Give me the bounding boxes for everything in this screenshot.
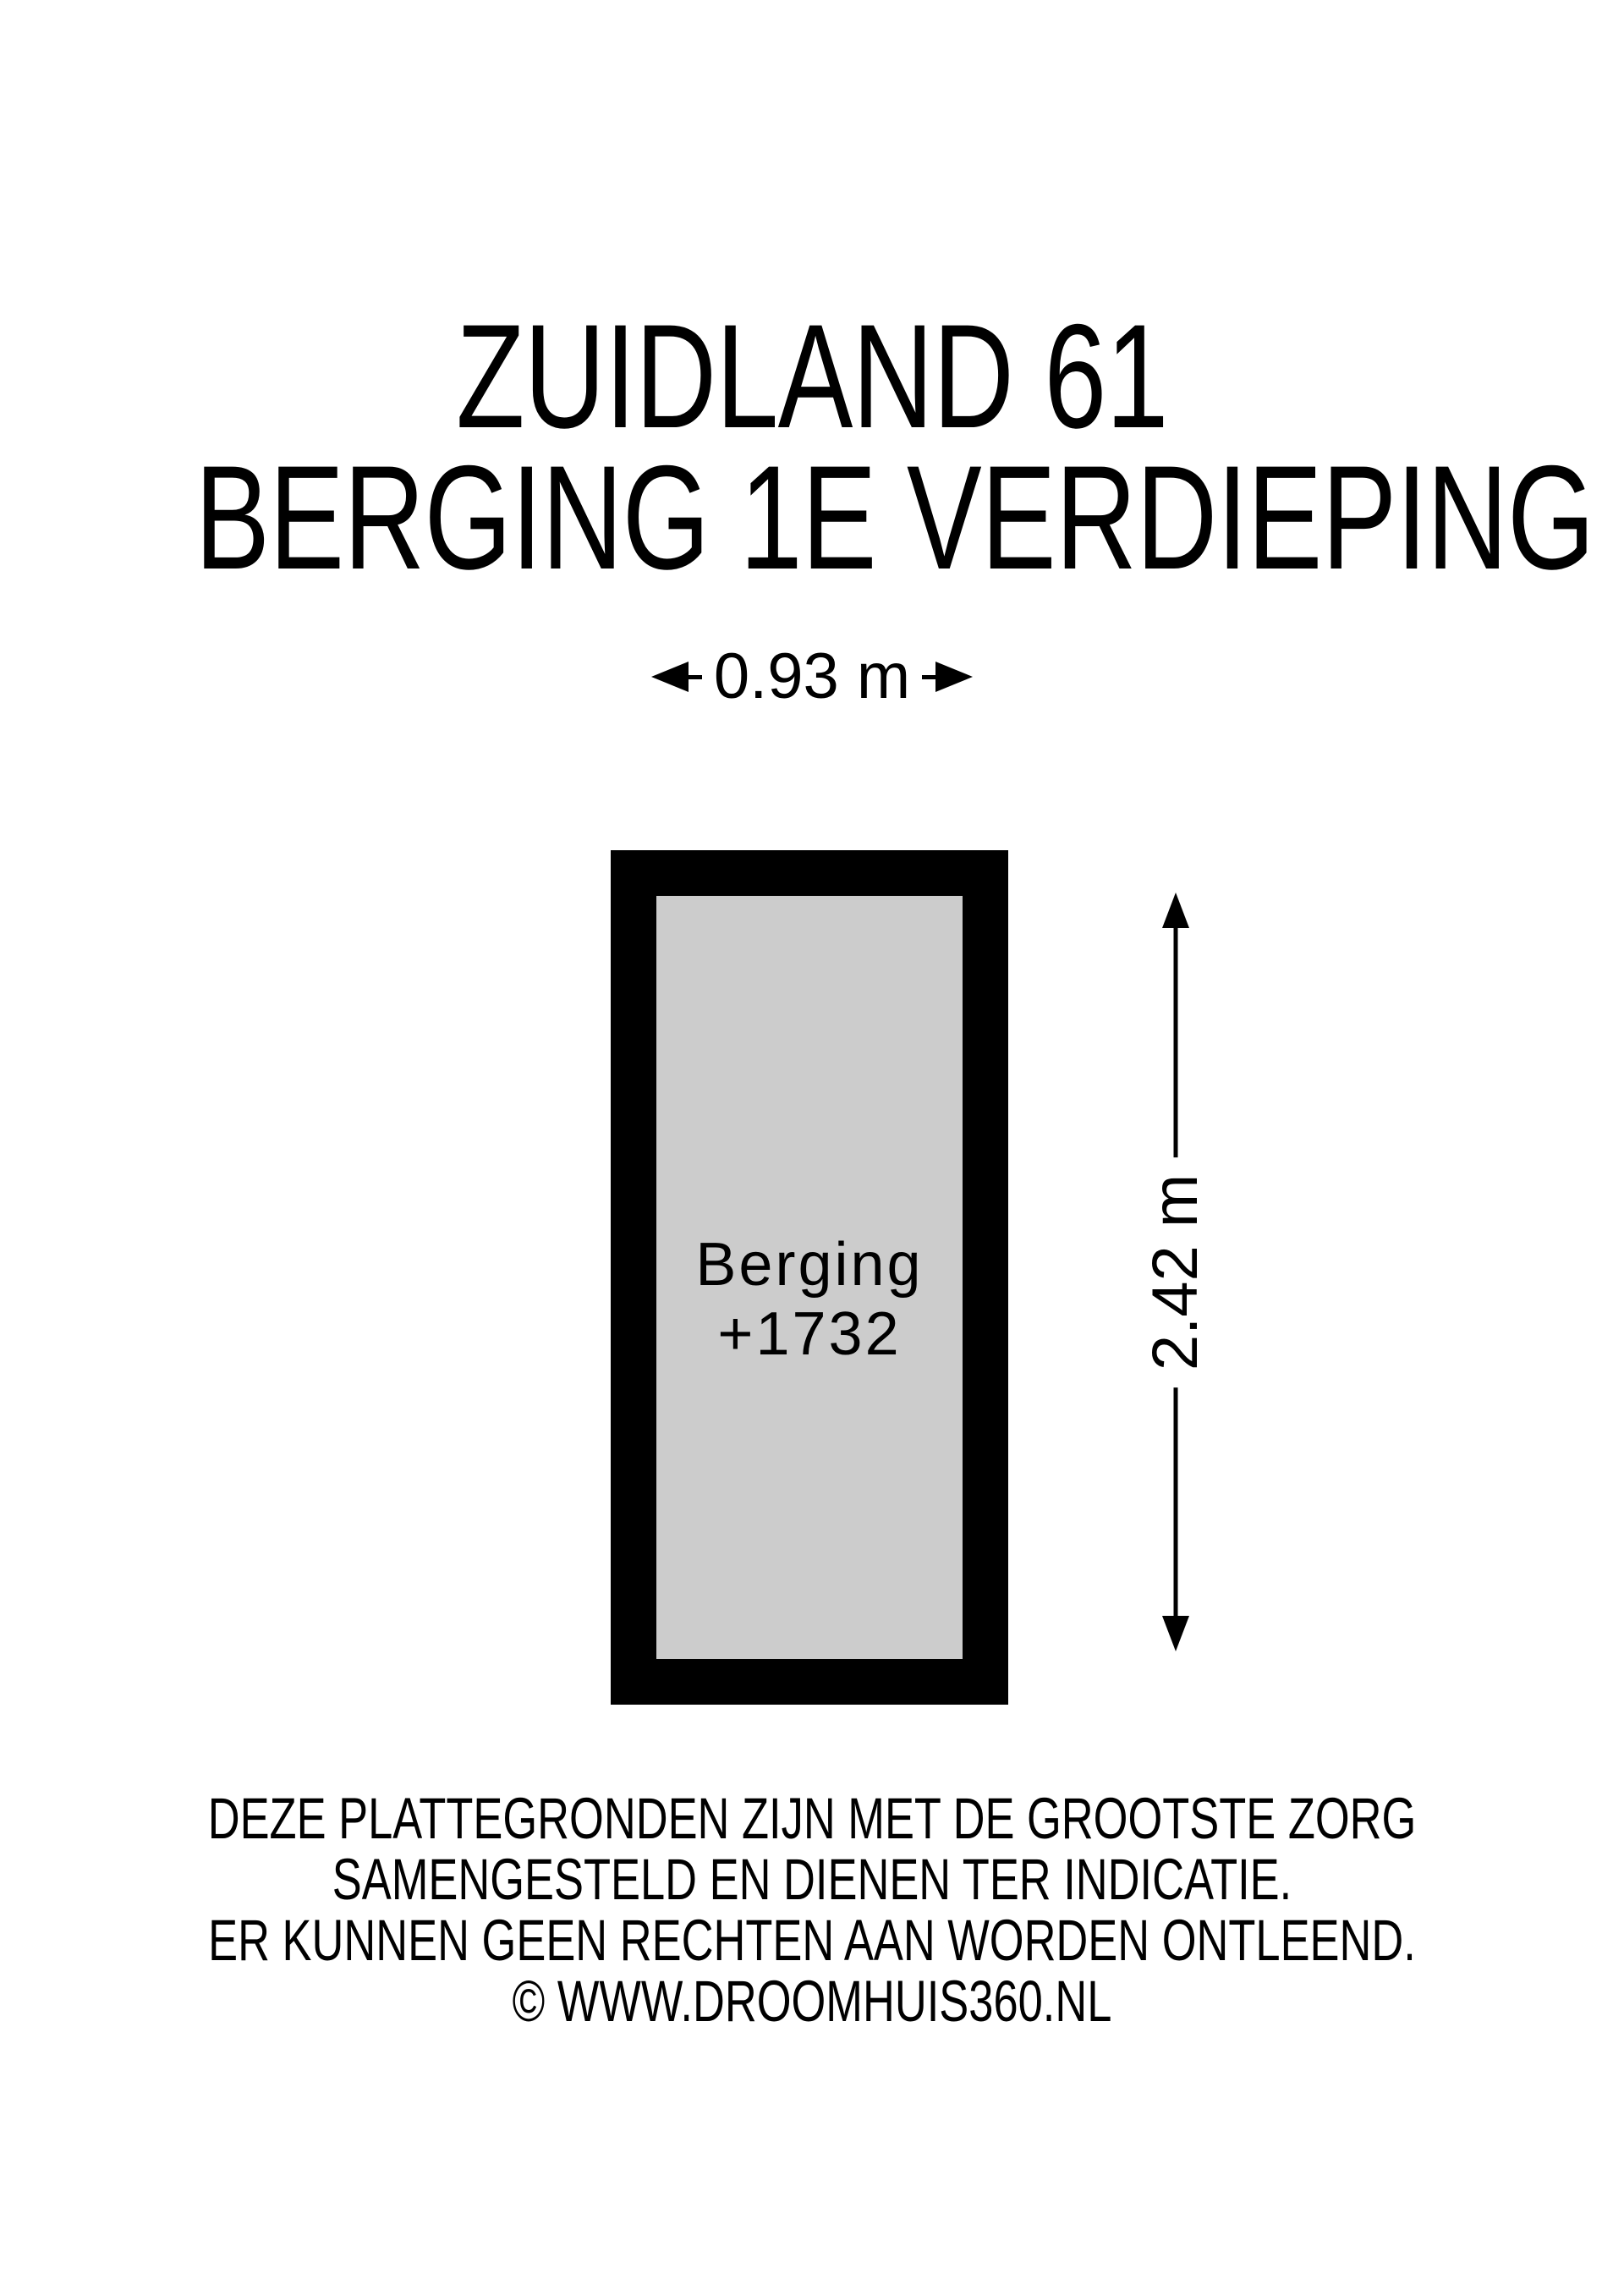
disclaimer-line-2: SAMENGESTELD EN DIENEN TER INDICATIE. (195, 1849, 1429, 1910)
width-dimension: 0.93 m (0, 641, 1624, 712)
height-dimension: 2.42 m (1157, 893, 1194, 1651)
room-name: Berging (656, 1230, 963, 1299)
page-title: ZUIDLAND 61 BERGING 1E VERDIEPING (0, 306, 1624, 589)
disclaimer-line-1: DEZE PLATTEGRONDEN ZIJN MET DE GROOTSTE … (195, 1788, 1429, 1849)
arrow-right-icon (935, 662, 973, 692)
width-dimension-label: 0.93 m (702, 641, 922, 712)
dimension-line-stub-right (922, 675, 935, 679)
disclaimer-line-4: © WWW.DROOMHUIS360.NL (195, 1971, 1429, 2032)
floorplan-walls: Berging +1732 (611, 850, 1008, 1705)
arrow-up-icon (1162, 893, 1189, 928)
page-title-line2: BERGING 1E VERDIEPING (195, 448, 1429, 589)
arrow-down-icon (1162, 1616, 1189, 1651)
disclaimer: DEZE PLATTEGRONDEN ZIJN MET DE GROOTSTE … (0, 1788, 1624, 2032)
room-berging: Berging +1732 (656, 896, 963, 1659)
height-dimension-label: 2.42 m (1140, 1156, 1211, 1387)
page-title-line1: ZUIDLAND 61 (195, 306, 1429, 448)
dimension-line-stub-left (689, 675, 702, 679)
arrow-left-icon (651, 662, 689, 692)
disclaimer-line-3: ER KUNNEN GEEN RECHTEN AAN WORDEN ONTLEE… (195, 1910, 1429, 1971)
room-label: Berging +1732 (656, 1230, 963, 1369)
room-number: +1732 (656, 1299, 963, 1369)
